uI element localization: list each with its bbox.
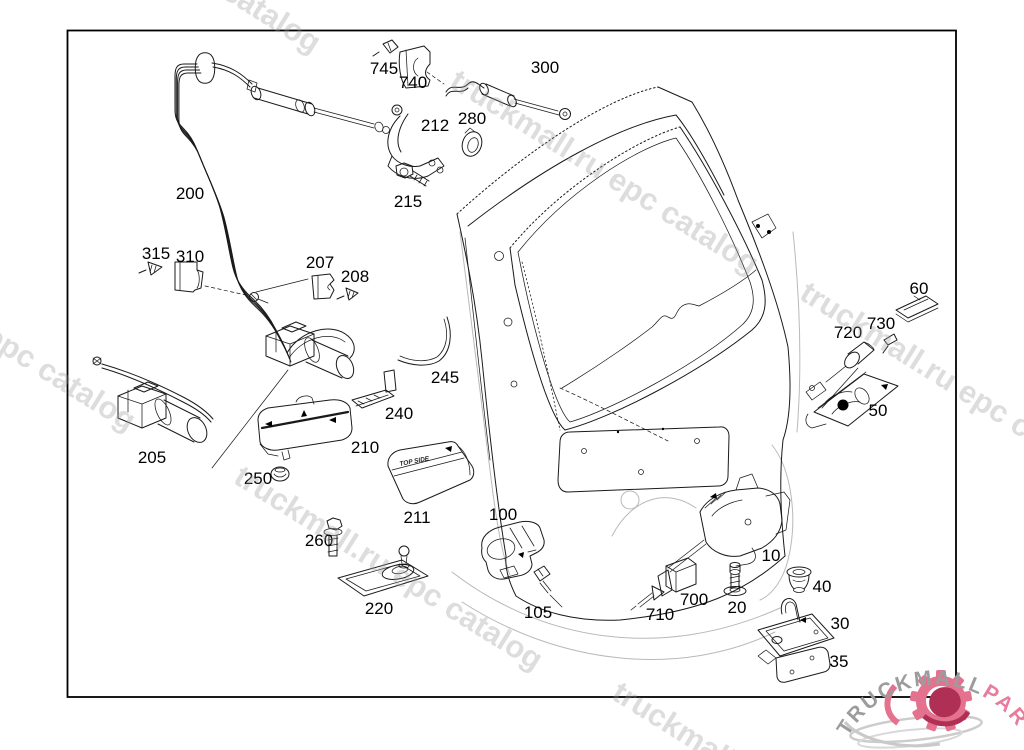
part-label-310: 310 [176, 247, 204, 266]
part-240-bracket-drawing [352, 370, 396, 408]
top-side-text: TOP SIDE [399, 455, 430, 468]
watermark-text: truckmall.ru epc catalog [444, 62, 765, 281]
part-label-100: 100 [489, 505, 517, 524]
part-label-30: 30 [831, 614, 850, 633]
central-actuator-drawing [212, 322, 357, 468]
part-label-208: 208 [341, 267, 369, 286]
part-label-700: 700 [680, 590, 708, 609]
part-40-grommet-drawing [787, 567, 811, 593]
exploded-diagram: TOP SIDE [0, 0, 1024, 750]
part-label-10: 10 [762, 546, 781, 565]
part-number-labels: 7457403002122802152003153102072082452402… [138, 58, 929, 671]
part-label-20: 20 [728, 598, 747, 617]
part-label-60: 60 [910, 279, 929, 298]
part-310-connector-drawing [139, 262, 246, 295]
part-label-315: 315 [142, 244, 170, 263]
watermark-text: truckmall.ru epc catalog [228, 458, 549, 677]
part-label-50: 50 [869, 401, 888, 420]
part-label-710: 710 [646, 605, 674, 624]
part-label-210: 210 [351, 438, 379, 457]
part-label-300: 300 [531, 58, 559, 77]
car-body-underlay [452, 232, 800, 659]
part-label-211: 211 [403, 508, 430, 527]
part-35-plate-drawing [776, 647, 830, 682]
part-215-bolt-drawing [396, 163, 429, 186]
part-210-module-drawing [258, 396, 352, 460]
watermark-layer: truckmall.ru epc catalogtruckmall.ru epc… [0, 0, 1024, 750]
part-label-240: 240 [385, 404, 413, 423]
part-label-745: 745 [370, 59, 398, 78]
part-60-lens-drawing [896, 296, 938, 322]
part-200-harness-drawing [175, 53, 390, 362]
part-label-205: 205 [138, 448, 166, 467]
part-105-clip-drawing [534, 566, 562, 607]
part-label-207: 207 [306, 253, 334, 272]
part-label-245: 245 [431, 368, 459, 387]
part-label-220: 220 [365, 599, 393, 618]
part-label-212: 212 [421, 116, 449, 135]
part-211-cover-drawing: TOP SIDE [388, 442, 474, 504]
parts-catalog-page: TOP SIDE [0, 0, 1024, 750]
part-30-striker-drawing [758, 599, 834, 664]
watermark-text: truckmall.ru epc catalog [0, 219, 142, 438]
watermark-text: truckmall.ru epc catalog [794, 274, 1024, 493]
part-280-grommet-drawing [459, 128, 485, 159]
part-label-40: 40 [813, 577, 832, 596]
part-label-740: 740 [399, 73, 427, 92]
part-245-wire-drawing [398, 317, 450, 365]
part-label-200: 200 [176, 184, 204, 203]
part-label-105: 105 [524, 603, 552, 622]
part-100-handle-drawing [482, 521, 545, 579]
part-label-35: 35 [830, 652, 849, 671]
part-label-215: 215 [394, 192, 422, 211]
